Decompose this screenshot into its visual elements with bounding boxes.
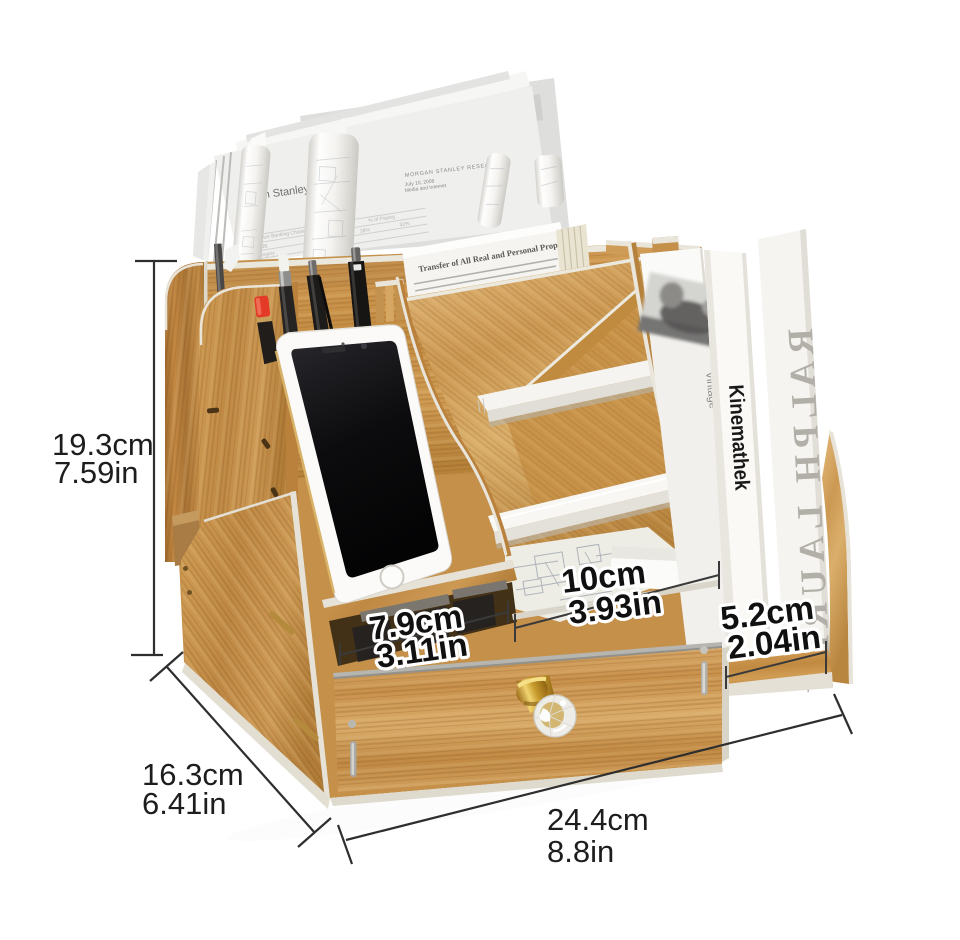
svg-text:8.8in: 8.8in (547, 834, 614, 869)
svg-text:24.4cm: 24.4cm (547, 802, 649, 837)
svg-text:7.59in: 7.59in (54, 455, 138, 490)
svg-text:6.41in: 6.41in (142, 786, 226, 821)
